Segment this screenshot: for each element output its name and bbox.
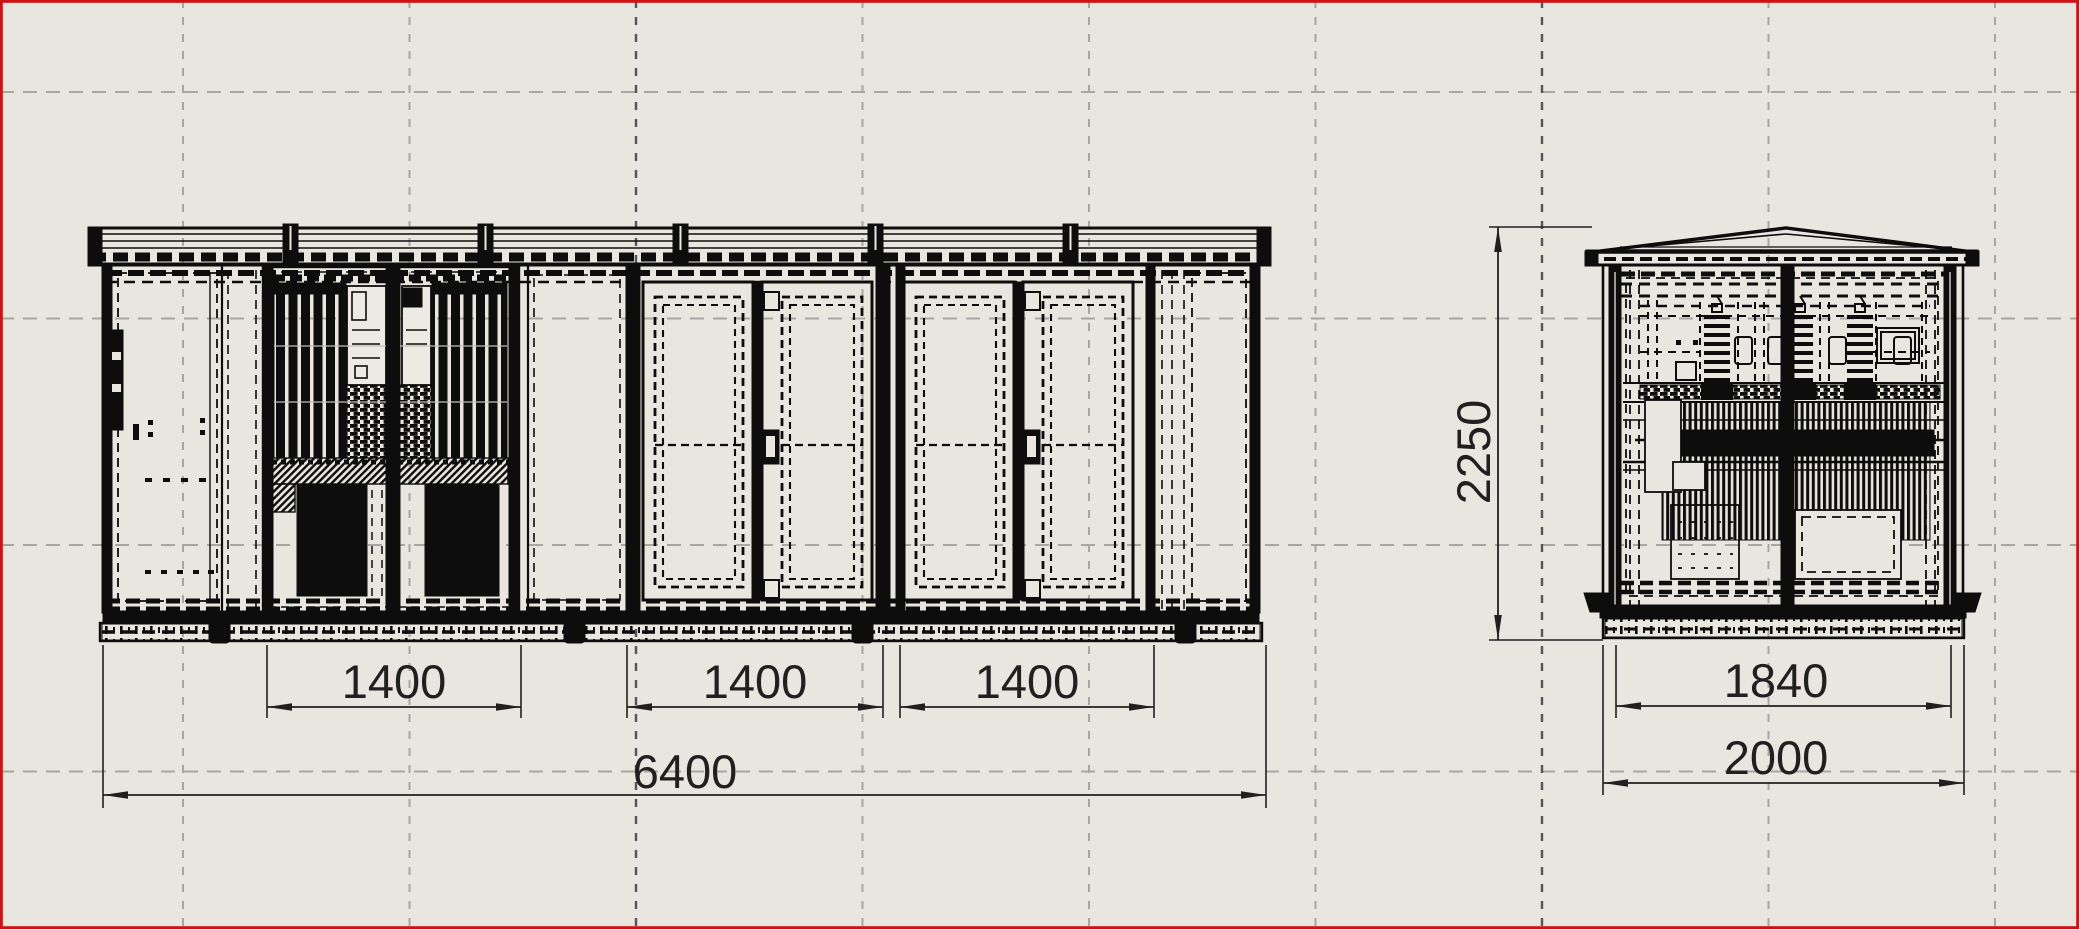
svg-text:6400: 6400 xyxy=(633,745,738,798)
svg-text:1840: 1840 xyxy=(1724,654,1829,707)
svg-text:1400: 1400 xyxy=(703,655,808,708)
svg-text:2000: 2000 xyxy=(1724,731,1829,784)
svg-text:1400: 1400 xyxy=(342,655,447,708)
svg-text:1400: 1400 xyxy=(975,655,1080,708)
svg-text:2250: 2250 xyxy=(1447,400,1500,505)
